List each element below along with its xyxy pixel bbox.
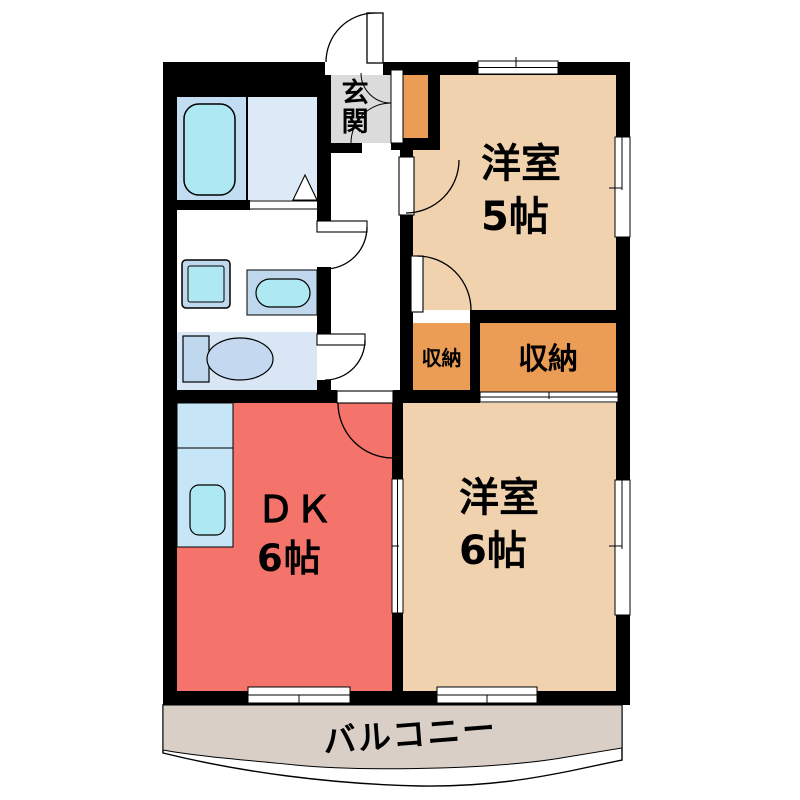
closet-large-label: 収納 [480,340,616,380]
room-name: ＤＫ [257,486,333,535]
room-size: 6帖 [257,535,333,584]
wall [163,691,630,705]
wall [163,62,331,97]
cabinet-door-strip [391,70,403,143]
wall [392,403,403,479]
room-name: 洋室 [459,472,539,525]
entrance-label: 玄関 [334,78,370,136]
wall [392,613,403,691]
floorplan-image: 洋室 5帖 洋室 6帖 ＤＫ 6帖 収納 収納 玄関 バルコニー [0,0,800,800]
wall [177,200,250,210]
wall [317,97,331,222]
room-size: 5帖 [481,191,561,244]
bathtub-icon [184,104,235,195]
closet-small-label: 収納 [413,345,470,371]
floorplan-drawing [0,0,800,800]
western5-door-leaf [399,157,414,215]
wall [317,267,331,335]
wall [428,62,440,150]
toilet-door-leaf [317,334,365,345]
toilet-icon [207,338,273,380]
western6-room-label: 洋室 6帖 [459,472,539,578]
wall [163,390,337,403]
closet-small-door-leaf [411,256,423,312]
room-name: 洋室 [481,138,561,191]
shoe-cabinet-icon [403,73,428,138]
western5-room-label: 洋室 5帖 [481,138,561,244]
wash-basin-icon [256,279,310,307]
washroom-door-leaf [317,221,367,232]
entrance-opening [325,62,383,75]
wall [163,62,177,705]
dk-room-label: ＤＫ 6帖 [257,486,333,584]
room-size: 6帖 [459,525,539,578]
toilet-tank [183,336,209,382]
wall [393,390,480,403]
wall [470,310,630,323]
kitchen-sink-icon [190,485,225,535]
washing-machine-drum [188,266,224,302]
entrance-door-leaf [367,13,383,63]
dk-door-leaf [337,391,393,403]
wall [331,143,362,153]
wall [470,310,480,403]
